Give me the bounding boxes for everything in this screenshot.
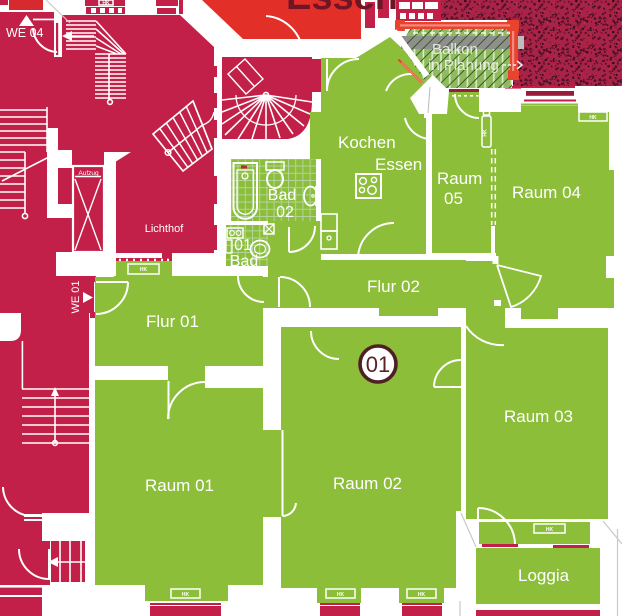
svg-text:Aufzug: Aufzug: [78, 170, 99, 177]
svg-text:in Planung: in Planung: [428, 57, 499, 74]
svg-text:Essen: Essen: [286, 0, 398, 18]
svg-text:HK: HK: [182, 592, 190, 598]
svg-text:02: 02: [276, 204, 294, 221]
svg-text:Loggia: Loggia: [518, 566, 570, 585]
svg-text:HK: HK: [483, 129, 489, 137]
svg-text:Lichthof: Lichthof: [145, 223, 184, 235]
svg-text:01: 01: [234, 237, 252, 254]
svg-text:Raum 03: Raum 03: [504, 407, 573, 426]
svg-text:HK: HK: [102, 1, 110, 7]
svg-text:HK: HK: [337, 592, 345, 598]
svg-text:Bad: Bad: [230, 253, 258, 270]
svg-text:Bad: Bad: [268, 187, 296, 204]
svg-text:Raum 01: Raum 01: [145, 476, 214, 495]
svg-text:Kochen: Kochen: [338, 133, 396, 152]
svg-text:HK: HK: [418, 592, 426, 598]
svg-text:HK: HK: [589, 115, 597, 121]
svg-text:Flur 02: Flur 02: [367, 277, 420, 296]
svg-text:Essen: Essen: [375, 155, 422, 174]
svg-text:HK: HK: [140, 267, 148, 273]
svg-text:WE 04: WE 04: [6, 26, 44, 40]
svg-text:WE 01: WE 01: [70, 280, 82, 313]
svg-text:Raum 04: Raum 04: [512, 183, 581, 202]
svg-text:05: 05: [444, 189, 463, 208]
svg-text:HK: HK: [546, 527, 554, 533]
svg-text:Balkon: Balkon: [432, 41, 478, 58]
svg-text:01: 01: [366, 352, 390, 377]
svg-text:Flur 01: Flur 01: [146, 312, 199, 331]
svg-text:Raum 02: Raum 02: [333, 474, 402, 493]
svg-text:Raum: Raum: [437, 169, 482, 188]
